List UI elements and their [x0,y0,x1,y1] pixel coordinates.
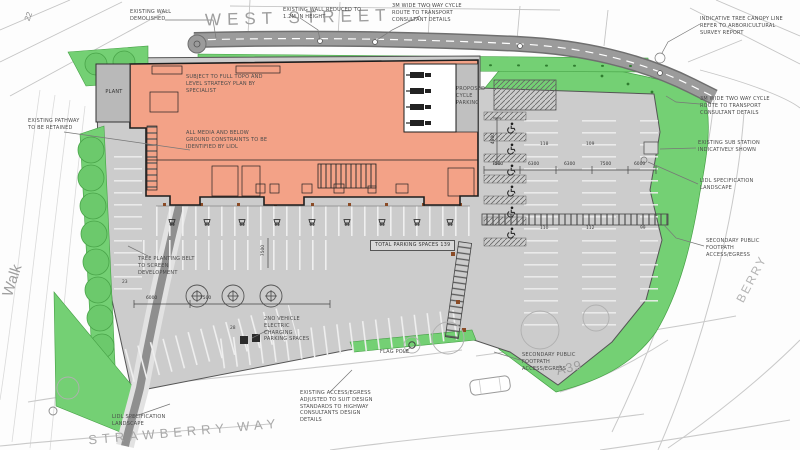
site-plan-drawing: WEST STREET STRAWBERRY WAY A39 BERRY Wal… [0,0,800,450]
dim-4800-f: 4800 [491,133,496,144]
note-tree-belt: TREE PLANTING BELT TO SCREEN DEVELOPMENT [138,256,208,276]
car-icon [469,375,511,395]
site-plan-canvas [0,0,800,450]
substation [644,142,658,154]
dim-7500-v1: 7500 [261,245,266,256]
dim-6300-b: 6300 [528,162,539,167]
dim-7500-a: 7500 [492,162,503,167]
dim-6300-c: 6300 [564,162,575,167]
plant-room-label: PLANT [98,89,130,96]
bay-number: 23 [122,280,128,285]
total-parking-spaces-box: TOTAL PARKING SPACES 139 [370,240,455,251]
dim-7500-d: 7500 [600,162,611,167]
dim-6000-g: 6000 [146,296,157,301]
note-pathway-retained: EXISTING PATHWAY TO BE RETAINED [28,118,98,132]
bay-number: 99 [640,226,646,231]
landscape-marker [49,407,57,415]
note-landscape-bottom: LIDL SPECIFICATION LANDSCAPE [112,414,184,428]
note-canopy-line: INDICATIVE TREE CANOPY LINE REFER TO ARB… [700,16,798,36]
note-ev-charging: 2NO VEHICLE ELECTRIC CHARGING PARKING SP… [264,316,322,343]
bay-number: 109 [586,142,594,147]
note-flag-pole: FLAG POLE [380,349,422,356]
racking-block [318,164,376,188]
note-topo: SUBJECT TO FULL TOPO AND LEVEL STRATEGY … [186,74,298,94]
bay-number: 28 [230,326,236,331]
note-substation: EXISTING SUB STATION INDICATIVELY SHOWN [698,140,790,154]
note-wall-reduced: EXISTING WALL REDUCED TO 1.2M IN HEIGHT [283,7,375,21]
note-wall-demolished: EXISTING WALL DEMOLISHED [130,9,190,23]
note-secondary-footpath-right: SECONDARY PUBLIC FOOTPATH ACCESS/EGRESS [706,238,788,258]
dim-7500-h: 7500 [200,296,211,301]
dim-6000-e: 6000 [634,162,645,167]
cycle-parking-area [494,80,556,110]
stair-core [147,126,157,190]
note-cycle-route-top: 3M WIDE TWO WAY CYCLE ROUTE TO TRANSPORT… [392,3,484,23]
building-footprint [130,60,478,205]
note-media: ALL MEDIA AND BELOW GROUND CONSTRAINTS T… [186,130,298,150]
note-access-adjusted: EXISTING ACCESS/EGRESS ADJUSTED TO SUIT … [300,390,398,424]
note-cycle-parking: PROPOSED CYCLE PARKING [456,86,496,106]
note-secondary-footpath-bottom: SECONDARY PUBLIC FOOTPATH ACCESS/EGRESS [522,352,604,372]
note-landscape-right: LIDL SPECIFICATION LANDSCAPE [700,178,782,192]
bay-number: 112 [586,226,594,231]
note-cycle-route-right: 3M WIDE TWO WAY CYCLE ROUTE TO TRANSPORT… [700,96,798,116]
bay-number: 118 [540,142,548,147]
bay-number: 110 [540,226,548,231]
